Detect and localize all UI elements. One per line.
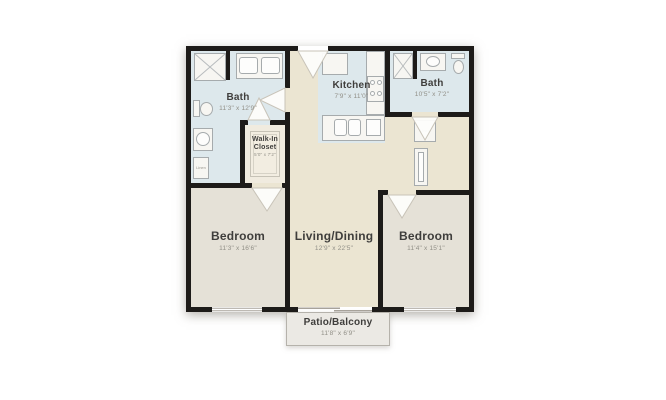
- wall-bedroom-left-top-seg: [186, 183, 252, 188]
- wall-bedroom-left-top-seg: [282, 183, 290, 188]
- room-name: Walk-In Closet: [249, 136, 281, 151]
- room-label-bath-right: Bath 10'5" x 7'2": [398, 78, 466, 98]
- room-dims: 12'9" x 22'5": [290, 245, 378, 252]
- wall-left: [186, 46, 191, 312]
- room-name: Bedroom: [191, 230, 285, 244]
- kitchen-sink-icon: [348, 119, 361, 136]
- wall-bath-left-right-upper: [285, 46, 290, 88]
- wall-bottom-seg: [372, 307, 404, 312]
- wall-bath-right-bottom-seg: [390, 112, 412, 117]
- toilet-icon: [453, 60, 464, 74]
- floorplan-canvas: Linen Linen: [0, 0, 666, 400]
- vanity-sink-icon: [239, 57, 258, 74]
- room-dims: 5'0" x 7'2": [245, 152, 285, 157]
- wall-closet-top-seg: [240, 120, 248, 125]
- wall-bath-right-bottom-seg: [438, 112, 474, 117]
- wall-kitchen-bath: [385, 46, 390, 117]
- wall-shower-stub-right: [413, 46, 417, 79]
- kitchen-sink-icon: [334, 119, 347, 136]
- room-name: Bedroom: [383, 230, 469, 244]
- wall-right: [469, 46, 474, 312]
- room-label-bedroom-left: Bedroom 11'3" x 16'6": [191, 230, 285, 252]
- wall-bottom-seg: [456, 307, 474, 312]
- room-label-bath-left: Bath 11'3" x 12'9": [191, 92, 285, 112]
- wall-closet-top-seg: [270, 120, 290, 125]
- wall-bedroom-right-top-seg: [416, 190, 474, 195]
- room-dims: 10'5" x 7'2": [398, 91, 466, 98]
- wall-bottom-seg: [186, 307, 212, 312]
- hall-closet-icon: [414, 148, 428, 186]
- room-dims: 11'8" x 6'9": [286, 330, 390, 337]
- wall-bedroom-right-top-seg: [378, 190, 388, 195]
- room-label-living-dining: Living/Dining 12'9" x 22'5": [290, 230, 378, 252]
- wall-living-left: [285, 112, 290, 312]
- shower-icon: [194, 53, 226, 81]
- vanity-sink-icon: [261, 57, 280, 74]
- hall-closet-shelf: [418, 152, 424, 182]
- room-name: Bath: [398, 78, 466, 90]
- wall-bottom-seg: [262, 307, 298, 312]
- room-label-patio: Patio/Balcony 11'8" x 6'9": [286, 317, 390, 337]
- room-dims: 11'3" x 12'9": [191, 105, 285, 112]
- room-name: Patio/Balcony: [286, 317, 390, 329]
- dishwasher-icon: [366, 119, 381, 136]
- linen-label: Linen: [415, 129, 435, 133]
- washer-door-icon: [196, 132, 210, 146]
- wall-top-left: [186, 46, 298, 51]
- wall-shower-stub-left: [226, 46, 230, 80]
- vanity-sink-icon: [426, 56, 440, 67]
- shower-icon: [393, 53, 413, 79]
- room-name: Kitchen: [318, 80, 385, 92]
- room-label-kitchen: Kitchen 7'9" x 11'0": [318, 80, 385, 100]
- room-dims: 7'9" x 11'0": [318, 93, 385, 100]
- wall-top-right: [328, 46, 474, 51]
- linen-label: Linen: [194, 166, 208, 170]
- room-name: Living/Dining: [290, 230, 378, 244]
- room-name: Bath: [191, 92, 285, 104]
- toilet-tank-icon: [451, 53, 465, 59]
- room-label-walk-in-closet: Walk-In Closet 5'0" x 7'2": [245, 136, 285, 157]
- room-label-bedroom-right: Bedroom 11'4" x 15'1": [383, 230, 469, 252]
- fridge-icon: [322, 53, 348, 75]
- room-dims: 11'3" x 16'6": [191, 245, 285, 252]
- room-dims: 11'4" x 15'1": [383, 245, 469, 252]
- linen-cabinet-icon: Linen: [414, 120, 436, 142]
- linen-cabinet-icon: Linen: [193, 157, 209, 179]
